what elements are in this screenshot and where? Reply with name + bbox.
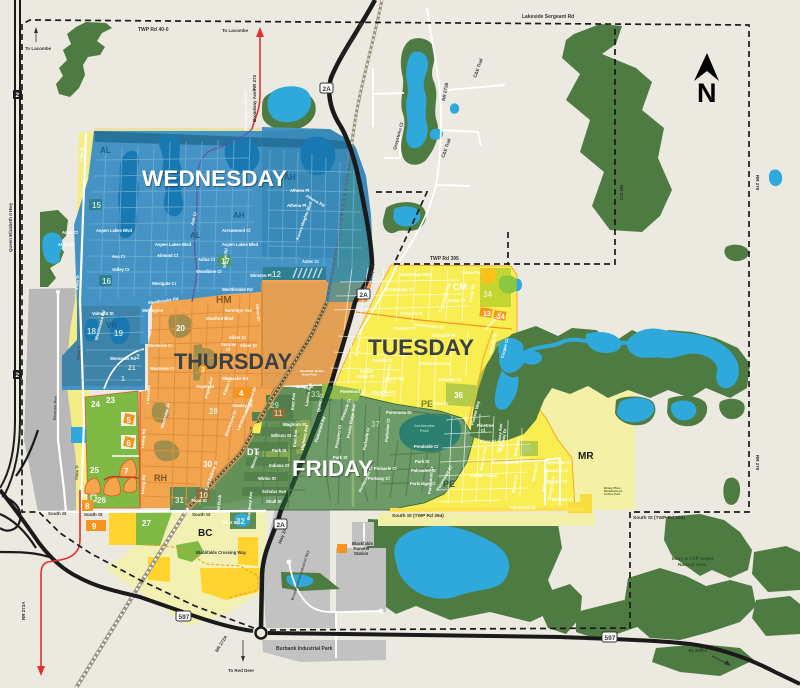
svg-text:Silver Dr: Silver Dr: [229, 335, 247, 340]
svg-text:Vista Tr: Vista Tr: [74, 465, 80, 481]
svg-text:Cl: Cl: [481, 428, 485, 433]
svg-text:Panorama Dr: Panorama Dr: [510, 505, 536, 510]
svg-text:1: 1: [121, 376, 125, 383]
svg-text:21: 21: [128, 365, 136, 372]
svg-text:Willson St: Willson St: [271, 433, 292, 438]
svg-text:TWP Rd 40-0: TWP Rd 40-0: [138, 27, 169, 33]
svg-text:Silver Dr: Silver Dr: [240, 343, 258, 348]
svg-text:Coachman Way: Coachman Way: [400, 272, 432, 277]
svg-text:38: 38: [522, 445, 531, 454]
svg-text:31: 31: [175, 496, 184, 505]
svg-text:Mary & Cliff Soper: Mary & Cliff Soper: [672, 556, 714, 562]
svg-text:Eastpointe Dr: Eastpointe Dr: [544, 460, 572, 465]
svg-text:26: 26: [97, 496, 106, 505]
svg-text:To Lacombe: To Lacombe: [222, 28, 249, 33]
svg-text:THURSDAY: THURSDAY: [174, 349, 292, 374]
svg-text:Woodbine Cl: Woodbine Cl: [196, 269, 222, 274]
svg-text:Athena Pl: Athena Pl: [287, 203, 306, 208]
svg-text:Park St: Park St: [415, 459, 430, 464]
svg-text:597: 597: [179, 614, 190, 621]
svg-text:South St: South St: [84, 512, 103, 517]
svg-text:Broadway Ave/RR 272: Broadway Ave/RR 272: [244, 90, 248, 130]
svg-text:2: 2: [16, 372, 20, 379]
svg-text:RR 270: RR 270: [755, 175, 760, 191]
svg-text:Eastpointe Dr: Eastpointe Dr: [492, 460, 520, 465]
svg-text:BC: BC: [198, 528, 212, 539]
svg-text:24: 24: [91, 400, 100, 409]
svg-text:Park St: Park St: [272, 448, 287, 453]
svg-text:Winko St: Winko St: [258, 476, 276, 481]
svg-text:Pinetree: Pinetree: [477, 423, 494, 428]
svg-text:15: 15: [92, 201, 101, 210]
svg-text:Sunridge Ave: Sunridge Ave: [225, 308, 252, 313]
svg-text:Trout St: Trout St: [222, 520, 238, 525]
svg-text:20: 20: [176, 324, 185, 333]
svg-text:3: 3: [201, 367, 205, 374]
svg-text:36: 36: [454, 391, 463, 400]
svg-text:27: 27: [142, 519, 151, 528]
svg-text:To Red Deer: To Red Deer: [228, 668, 254, 673]
svg-text:Westview Cr: Westview Cr: [148, 343, 173, 348]
svg-text:Westview Cr: Westview Cr: [150, 366, 175, 371]
svg-text:Mitchell Cr: Mitchell Cr: [552, 497, 574, 502]
svg-text:Westgate Cr: Westgate Cr: [152, 281, 177, 286]
svg-text:5: 5: [127, 416, 132, 425]
svg-text:16: 16: [102, 277, 111, 286]
svg-text:WEDNESDAY: WEDNESDAY: [142, 166, 287, 191]
svg-text:South St: South St: [192, 512, 211, 517]
svg-text:Lakeside Sergeant Rd: Lakeside Sergeant Rd: [522, 14, 574, 20]
svg-text:6: 6: [127, 439, 132, 448]
svg-text:Park St: Park St: [333, 455, 348, 460]
svg-text:2: 2: [136, 354, 140, 361]
svg-text:23: 23: [106, 396, 115, 405]
svg-text:Crimson Ct: Crimson Ct: [393, 326, 416, 331]
svg-text:PE: PE: [421, 399, 433, 409]
svg-text:Pinnacle Cl: Pinnacle Cl: [374, 466, 397, 471]
svg-text:13: 13: [483, 311, 491, 318]
svg-text:37: 37: [371, 420, 380, 429]
svg-text:Camille Ct: Camille Ct: [372, 358, 393, 363]
svg-text:Stanford Blvd: Stanford Blvd: [206, 316, 234, 321]
svg-text:HM: HM: [216, 295, 232, 306]
svg-text:12: 12: [272, 270, 281, 279]
svg-text:19: 19: [114, 329, 123, 338]
svg-text:25: 25: [90, 466, 99, 475]
svg-text:Adina Cl: Adina Cl: [198, 257, 215, 262]
svg-text:Almond Ct: Almond Ct: [157, 253, 179, 258]
svg-text:Maclean Cl: Maclean Cl: [546, 468, 568, 473]
svg-text:Anna Cl: Anna Cl: [62, 230, 78, 235]
svg-text:Pine Cr: Pine Cr: [434, 401, 449, 406]
svg-text:Palmer Circle: Palmer Circle: [470, 473, 497, 478]
svg-text:AH: AH: [284, 173, 296, 182]
svg-text:34: 34: [483, 290, 492, 299]
svg-text:RH: RH: [154, 473, 167, 483]
svg-text:Queen Elizabeth II Hwy: Queen Elizabeth II Hwy: [8, 202, 13, 252]
svg-text:Athens Pl: Athens Pl: [290, 188, 309, 193]
svg-text:Panorama Dr: Panorama Dr: [386, 410, 412, 415]
svg-text:Indiana St: Indiana St: [269, 463, 290, 468]
svg-text:Broadway Ave/RR 272: Broadway Ave/RR 272: [252, 74, 257, 122]
svg-text:TUESDAY: TUESDAY: [368, 335, 474, 360]
svg-text:Valley Cr: Valley Cr: [112, 267, 130, 272]
svg-text:Cedar Cr: Cedar Cr: [448, 298, 466, 303]
svg-text:Churchill Pl: Churchill Pl: [432, 333, 455, 338]
svg-text:Portway Cl: Portway Cl: [368, 476, 390, 481]
svg-text:Arrowwood Cl: Arrowwood Cl: [222, 228, 250, 233]
svg-text:Aspen Lakes Blvd: Aspen Lakes Blvd: [155, 242, 192, 247]
svg-text:Trout St: Trout St: [191, 498, 207, 503]
svg-text:Womacks Rd: Womacks Rd: [110, 356, 137, 361]
svg-text:Shull St: Shull St: [266, 499, 282, 504]
svg-text:Ava Cr: Ava Cr: [112, 254, 126, 259]
svg-text:Cl: Cl: [226, 347, 230, 352]
svg-text:To Lacombe: To Lacombe: [25, 46, 52, 51]
svg-text:Aspen Lakes Blvd: Aspen Lakes Blvd: [222, 242, 259, 247]
svg-text:597: 597: [605, 635, 616, 642]
svg-text:RR 273A: RR 273A: [21, 601, 26, 620]
svg-text:RR 270: RR 270: [755, 455, 760, 471]
svg-text:Crimson Cl: Crimson Cl: [400, 311, 422, 316]
svg-text:Westbrooke Rd: Westbrooke Rd: [222, 287, 253, 292]
svg-text:South St (TWP Rd 394): South St (TWP Rd 394): [633, 515, 685, 521]
svg-text:8: 8: [85, 502, 90, 511]
svg-text:South St (TWP Rd 394): South St (TWP Rd 394): [392, 513, 444, 519]
svg-text:Ponderosa Ave: Ponderosa Ave: [420, 361, 451, 366]
svg-text:4: 4: [239, 389, 244, 398]
svg-text:Cedar Sq: Cedar Sq: [462, 270, 481, 275]
svg-text:Homes Park: Homes Park: [604, 492, 621, 496]
svg-text:Ridge Cl: Ridge Cl: [357, 374, 374, 379]
svg-text:MR: MR: [578, 451, 594, 462]
svg-text:TWP Rd 395: TWP Rd 395: [430, 256, 459, 262]
svg-text:Home Park: Home Park: [302, 373, 317, 377]
svg-text:AH: AH: [233, 211, 245, 220]
svg-text:7: 7: [124, 467, 129, 476]
svg-text:2A: 2A: [360, 292, 369, 299]
svg-text:Park: Park: [420, 428, 429, 433]
svg-text:AL: AL: [100, 146, 111, 155]
svg-text:Aspen Lakes Blvd: Aspen Lakes Blvd: [96, 228, 133, 233]
svg-text:RR 271: RR 271: [619, 185, 624, 201]
svg-text:Pinewood Cl: Pinewood Cl: [340, 389, 365, 394]
svg-text:Vista Tr: Vista Tr: [76, 345, 82, 361]
svg-text:28: 28: [209, 407, 218, 416]
svg-text:Cambridge Cl: Cambridge Cl: [386, 287, 413, 292]
svg-text:Station: Station: [354, 551, 369, 556]
svg-text:Duncan Ave: Duncan Ave: [52, 395, 58, 420]
svg-text:Wellington: Wellington: [142, 308, 164, 313]
svg-text:To Joffre: To Joffre: [688, 648, 707, 653]
svg-text:Pondside Cr: Pondside Cr: [414, 444, 439, 449]
svg-text:Blackfalds Crossing Way: Blackfalds Crossing Way: [196, 550, 247, 555]
svg-text:AL: AL: [190, 231, 201, 240]
svg-text:South St: South St: [48, 511, 67, 516]
svg-text:Burbank Industrial Park: Burbank Industrial Park: [276, 646, 333, 652]
svg-text:2: 2: [16, 92, 20, 99]
svg-text:Winston Pl: Winston Pl: [250, 273, 272, 278]
svg-text:Piper Cl: Piper Cl: [480, 439, 496, 444]
svg-text:Coleman Cr: Coleman Cr: [438, 377, 462, 382]
svg-text:Aztec Cr: Aztec Cr: [302, 259, 319, 264]
svg-text:Arlen Cl: Arlen Cl: [58, 242, 74, 247]
svg-text:Natural Area: Natural Area: [678, 562, 707, 568]
svg-text:CM: CM: [453, 282, 467, 292]
svg-text:Schular Ave: Schular Ave: [262, 489, 287, 494]
svg-text:11: 11: [274, 409, 283, 418]
svg-text:2A: 2A: [323, 86, 332, 93]
svg-text:9: 9: [92, 522, 97, 531]
